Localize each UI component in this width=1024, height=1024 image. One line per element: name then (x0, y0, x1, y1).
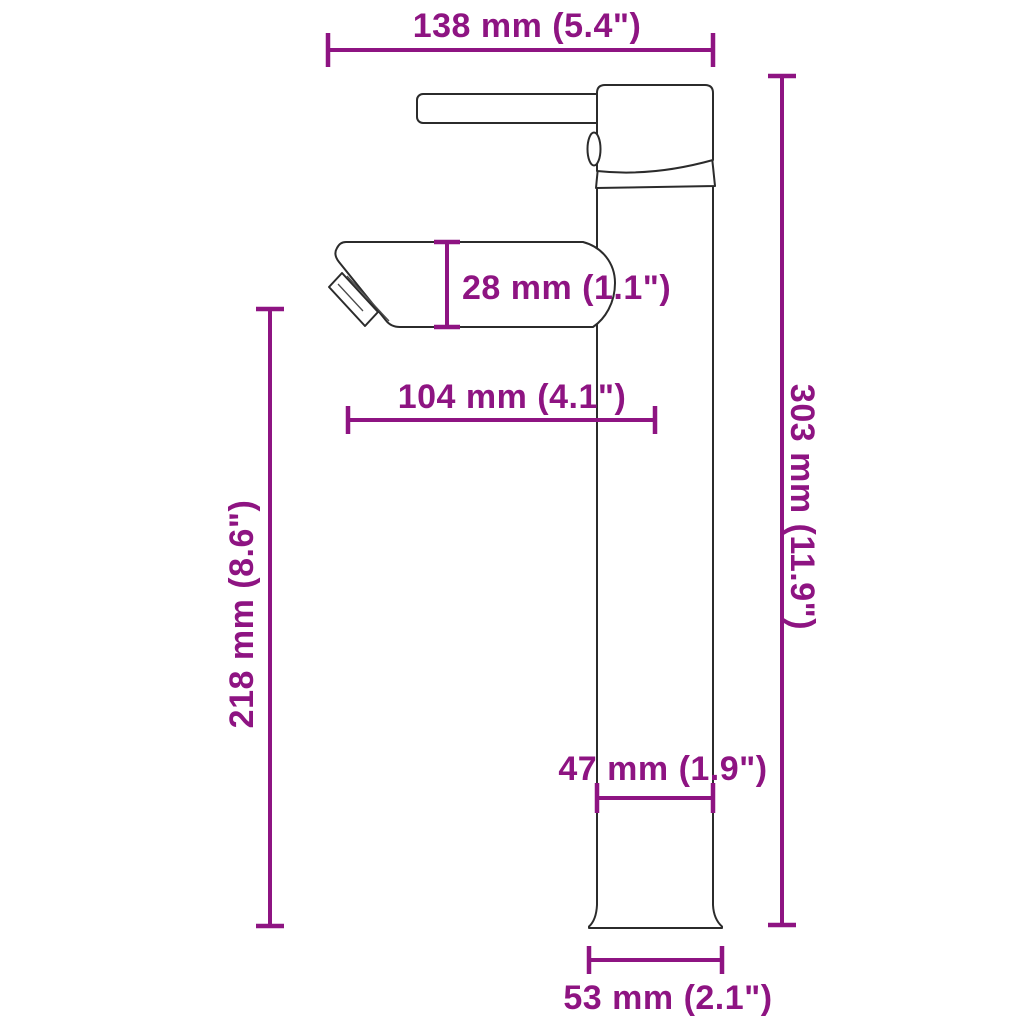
dimension-base-width: 53 mm (2.1") (563, 946, 772, 1017)
diagram-svg: 138 mm (5.4") 28 mm (1.1") 104 mm (4.1") (0, 0, 1024, 1024)
faucet-drawing (329, 85, 722, 928)
dim-label-47: 47 mm (1.9") (558, 750, 767, 788)
dim-label-53: 53 mm (2.1") (563, 979, 772, 1017)
dim-label-138: 138 mm (5.4") (413, 7, 642, 45)
dim-label-104: 104 mm (4.1") (398, 378, 627, 416)
dimension-overall-depth: 138 mm (5.4") (328, 7, 713, 67)
dim-label-303: 303 mm (11.9") (783, 384, 821, 630)
dim-label-28: 28 mm (1.1") (462, 269, 671, 307)
dimension-spout-clearance: 218 mm (8.6") (223, 309, 284, 926)
dimension-annotations: 138 mm (5.4") 28 mm (1.1") 104 mm (4.1") (223, 7, 821, 1017)
dimension-total-height: 303 mm (11.9") (768, 76, 821, 925)
handle-lever (417, 94, 603, 123)
head-screw-cover (588, 133, 601, 166)
mixer-head (597, 85, 713, 173)
faucet-dimension-diagram: 138 mm (5.4") 28 mm (1.1") 104 mm (4.1") (0, 0, 1024, 1024)
dim-label-218: 218 mm (8.6") (223, 500, 261, 729)
